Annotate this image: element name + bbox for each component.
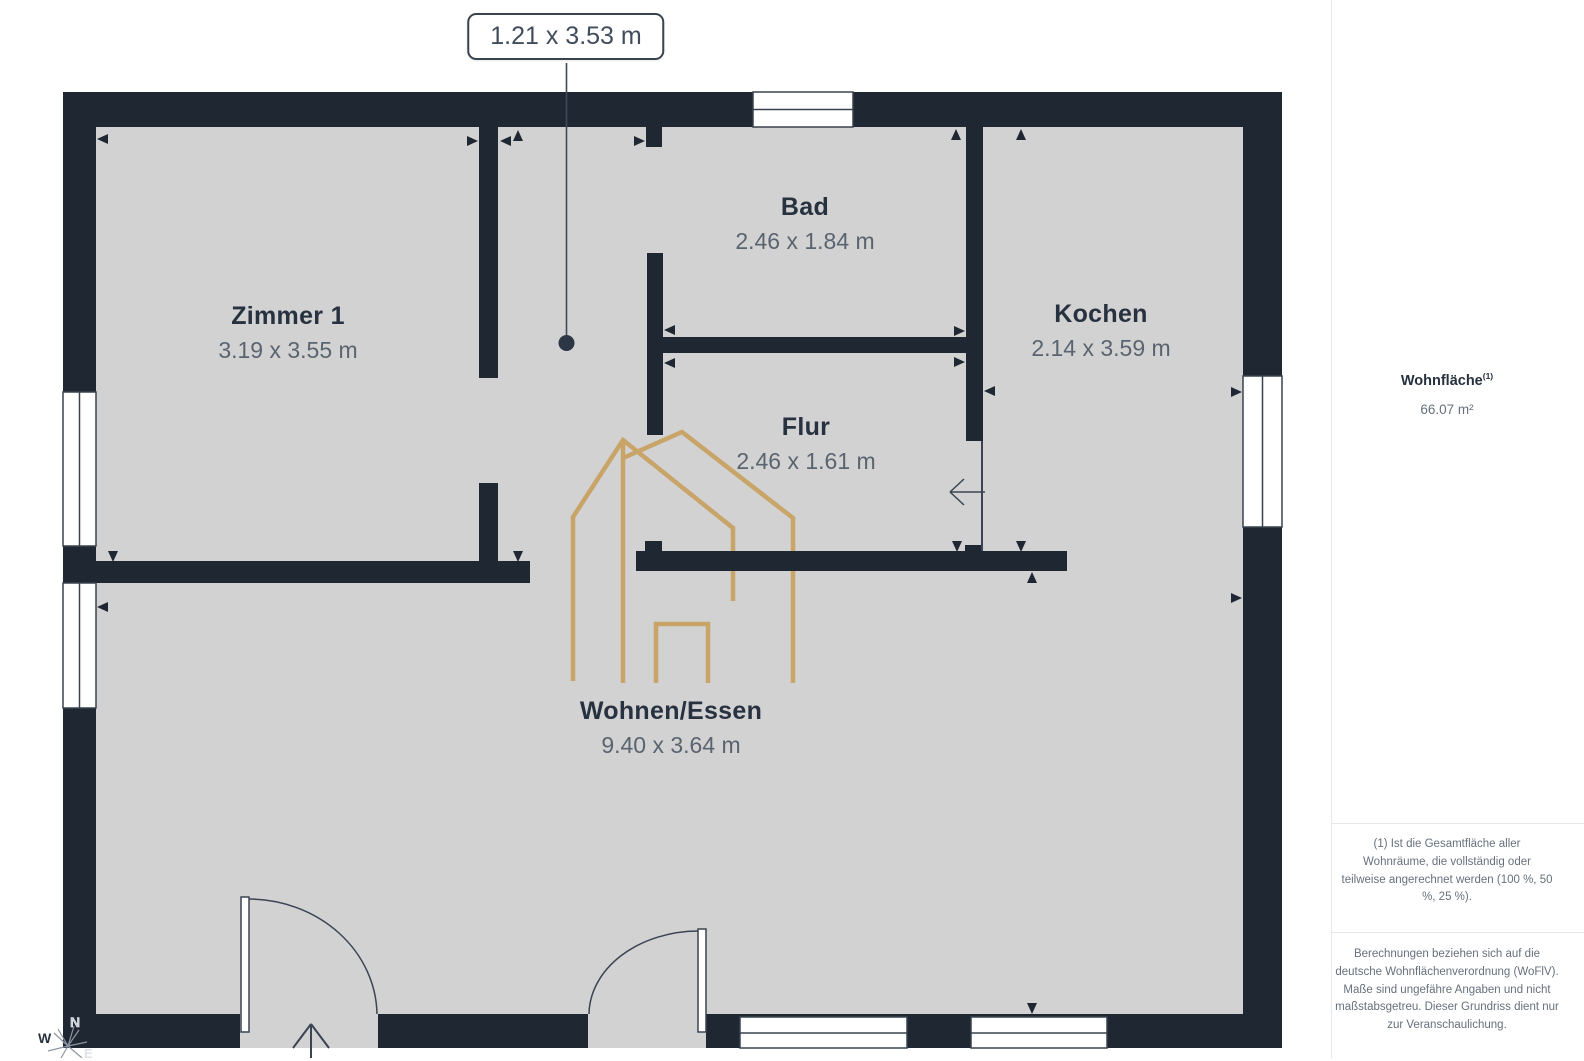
room-label-zimmer1[interactable]: Zimmer 1 3.19 x 3.55 m [218, 301, 357, 364]
footnote-marker: (1) [1483, 371, 1493, 381]
room-dimensions: 9.40 x 3.64 m [580, 731, 762, 759]
room-dimensions: 2.14 x 3.59 m [1031, 334, 1170, 362]
window-bottom-right [971, 1017, 1107, 1048]
sidebar-section-divider [1331, 823, 1584, 824]
room-dimensions: 2.46 x 1.84 m [735, 227, 874, 255]
room-name: Zimmer 1 [218, 301, 357, 331]
window-left-lower [63, 583, 96, 708]
disclaimer-text: Berechnungen beziehen sich auf die deuts… [1335, 946, 1559, 1035]
room-name: Flur [736, 412, 875, 442]
sidebar-section-divider [1331, 932, 1584, 933]
room-label-flur[interactable]: Flur 2.46 x 1.61 m [736, 412, 875, 475]
compass-north-label: N [70, 1014, 80, 1030]
room-name: Bad [735, 192, 874, 222]
living-area-value: 66.07 m² [1331, 402, 1563, 417]
compass-east-label: E [84, 1046, 93, 1061]
area-footnote: (1) Ist die Gesamtfläche aller Wohnräume… [1340, 836, 1554, 907]
floorplan-page: { "callout": { "label": "1.21 x 3.53 m" … [0, 0, 1584, 1058]
window-top [753, 92, 853, 127]
window-left-upper [63, 392, 96, 546]
living-area-summary: Wohnfläche(1) 66.07 m² [1331, 371, 1563, 417]
window-bottom-left [740, 1017, 907, 1048]
living-area-label: Wohnfläche(1) [1331, 371, 1563, 389]
room-label-kochen[interactable]: Kochen 2.14 x 3.59 m [1031, 299, 1170, 362]
room-name: Kochen [1031, 299, 1170, 329]
sidebar-divider [1331, 0, 1332, 1058]
room-dimensions: 2.46 x 1.61 m [736, 447, 875, 475]
compass-west-label: W [38, 1030, 51, 1046]
dimension-callout-label: 1.21 x 3.53 m [490, 22, 641, 50]
window-right [1243, 376, 1282, 527]
room-label-bad[interactable]: Bad 2.46 x 1.84 m [735, 192, 874, 255]
room-name: Wohnen/Essen [580, 696, 762, 726]
room-label-wohnen-essen[interactable]: Wohnen/Essen 9.40 x 3.64 m [580, 696, 762, 759]
dimension-callout[interactable]: 1.21 x 3.53 m [467, 13, 664, 60]
room-dimensions: 3.19 x 3.55 m [218, 336, 357, 364]
